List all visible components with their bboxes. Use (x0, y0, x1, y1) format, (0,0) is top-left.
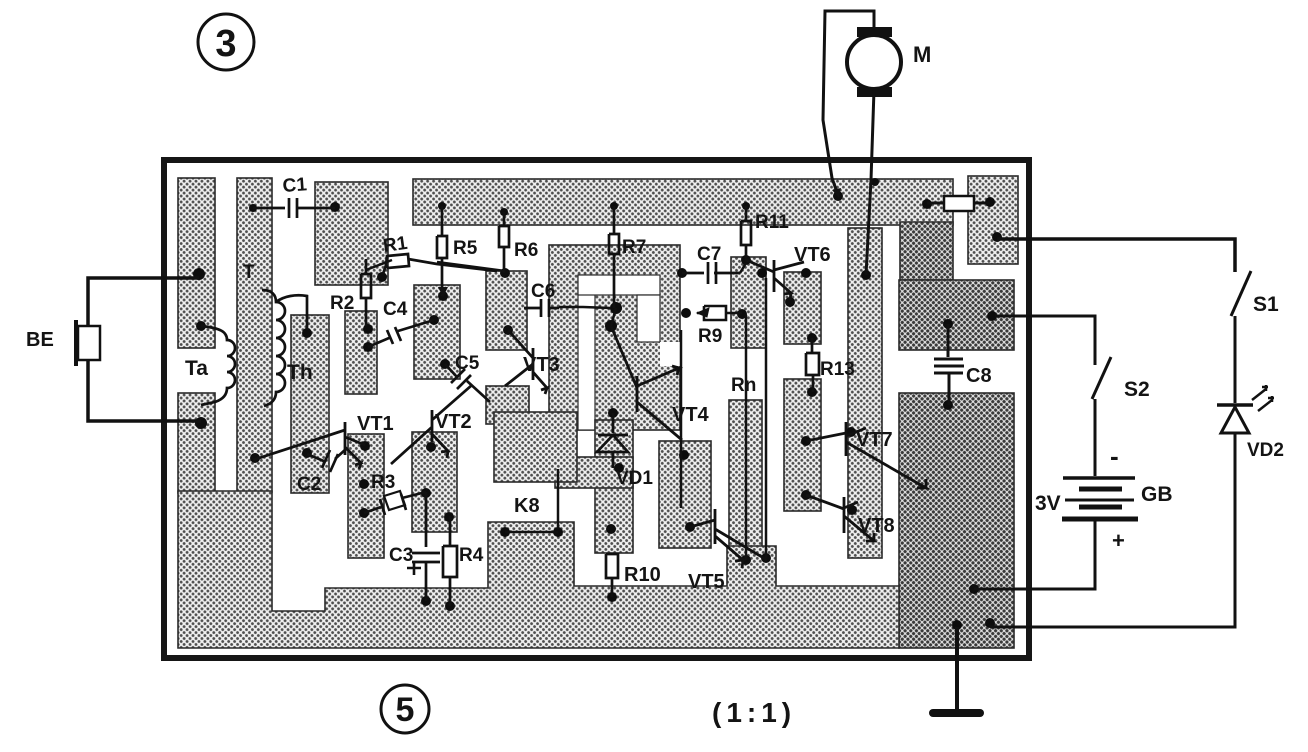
svg-text:+: + (1112, 528, 1125, 553)
svg-text:VT1: VT1 (357, 413, 394, 435)
svg-text:Rn: Rn (731, 375, 756, 396)
svg-text:VD2: VD2 (1247, 440, 1284, 461)
svg-text:VT3: VT3 (523, 354, 560, 376)
svg-text:K8: K8 (514, 495, 540, 517)
svg-text:R10: R10 (624, 564, 661, 586)
svg-text:R11: R11 (755, 212, 789, 233)
svg-text:5: 5 (396, 691, 415, 729)
svg-text:S2: S2 (1124, 378, 1150, 401)
svg-text:R2: R2 (330, 293, 354, 314)
svg-text:C2: C2 (297, 474, 321, 495)
svg-text:-: - (1110, 441, 1119, 471)
svg-text:R3: R3 (371, 472, 395, 493)
svg-text:Ta: Ta (185, 357, 208, 380)
svg-text:VT8: VT8 (858, 515, 895, 537)
svg-text:VT2: VT2 (435, 411, 472, 433)
svg-text:3V: 3V (1035, 492, 1061, 515)
svg-text:R7: R7 (622, 237, 646, 258)
svg-text:C1: C1 (282, 174, 308, 197)
svg-text:3: 3 (215, 23, 236, 65)
svg-text:R13: R13 (820, 359, 855, 380)
svg-text:S1: S1 (1253, 293, 1279, 316)
svg-text:VT6: VT6 (794, 244, 831, 266)
svg-text:C4: C4 (383, 299, 408, 320)
svg-text:R6: R6 (514, 240, 538, 261)
svg-text:R5: R5 (453, 238, 478, 259)
svg-text:(1:1): (1:1) (712, 697, 796, 728)
svg-text:BE: BE (26, 329, 54, 351)
svg-text:C6: C6 (531, 281, 555, 302)
svg-text:VT4: VT4 (672, 404, 710, 426)
svg-text:VT7: VT7 (856, 429, 893, 451)
svg-text:R9: R9 (698, 326, 722, 347)
svg-text:C8: C8 (966, 365, 992, 387)
svg-text:VT5: VT5 (688, 571, 725, 593)
svg-text:C7: C7 (697, 244, 721, 265)
svg-text:R1: R1 (382, 233, 409, 257)
svg-text:M: M (913, 42, 931, 67)
svg-text:C5: C5 (455, 353, 480, 374)
svg-text:C3: C3 (389, 545, 413, 566)
svg-text:T: T (243, 262, 255, 283)
svg-text:VD1: VD1 (616, 468, 653, 489)
svg-text:R4: R4 (459, 545, 484, 566)
svg-text:Th: Th (287, 361, 313, 384)
svg-text:GB: GB (1141, 483, 1173, 506)
